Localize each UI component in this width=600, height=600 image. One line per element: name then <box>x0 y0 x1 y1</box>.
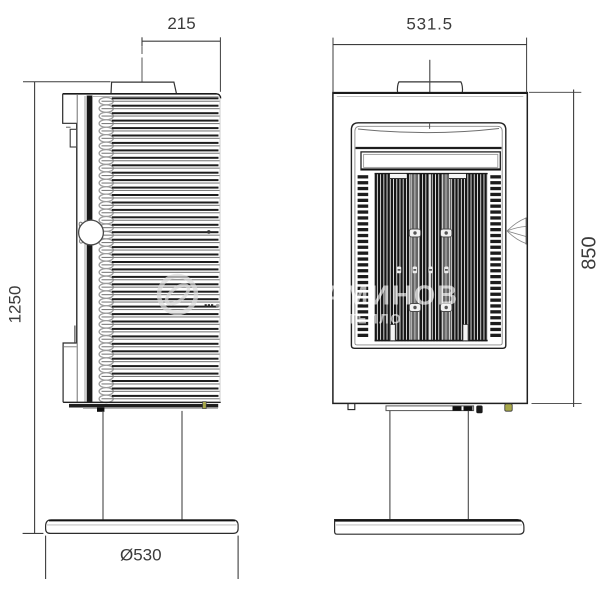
svg-text:850: 850 <box>579 236 600 269</box>
svg-text:531.5: 531.5 <box>406 15 453 34</box>
svg-text:Ø530: Ø530 <box>120 546 162 565</box>
svg-text:ТЕПЛО: ТЕПЛО <box>348 312 402 327</box>
svg-text:МИР КАМИНОВ: МИР КАМИНОВ <box>228 279 459 310</box>
svg-text:1250: 1250 <box>6 286 25 324</box>
svg-text:215: 215 <box>167 14 195 33</box>
